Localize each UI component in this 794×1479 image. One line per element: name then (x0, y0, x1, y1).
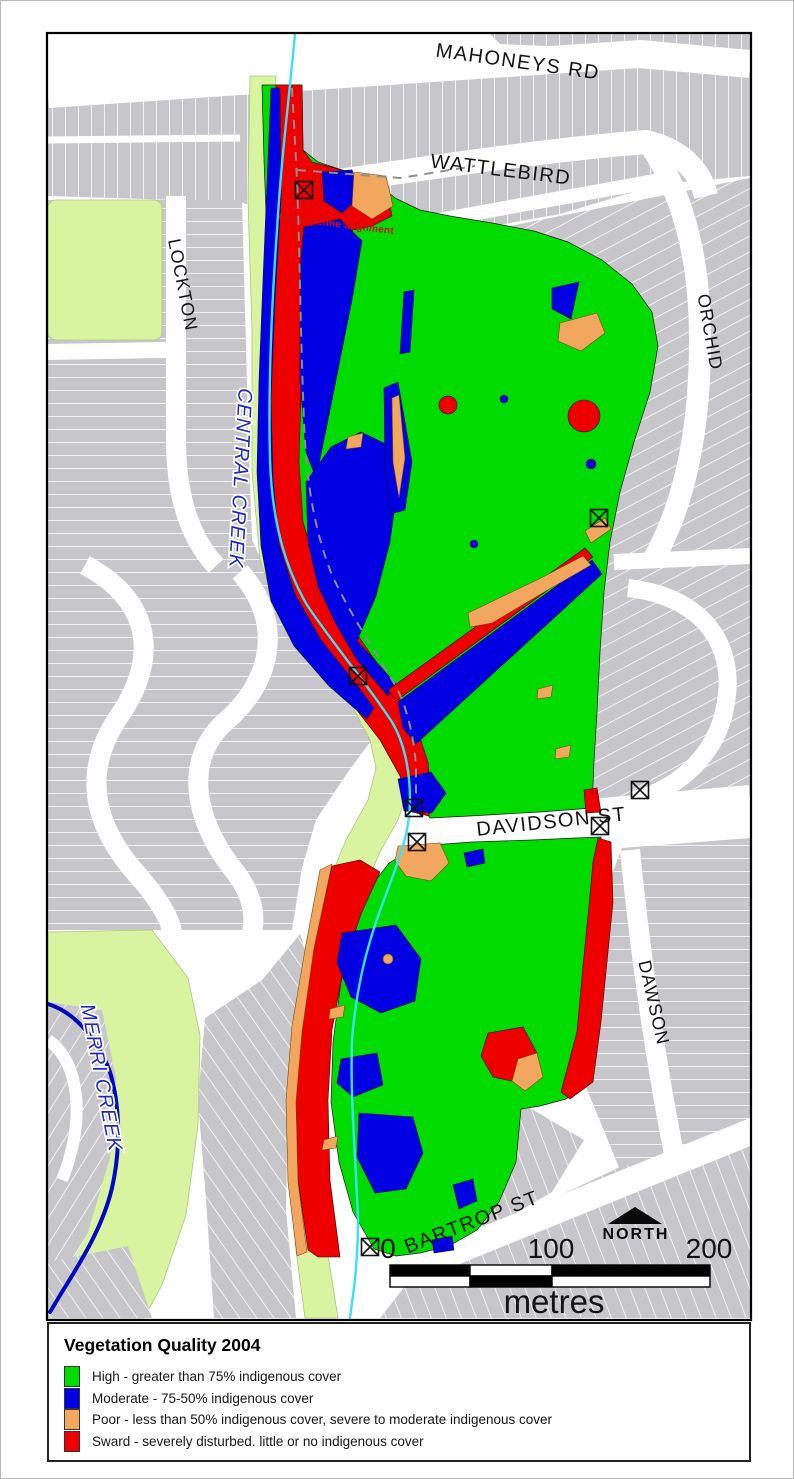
vegetation-poor-areas-shape (383, 954, 393, 964)
legend-item-label: Moderate - 75-50% indigenous cover (92, 1392, 313, 1406)
parkland-areas-shape (48, 200, 162, 340)
legend-item-label: High - greater than 75% indigenous cover (92, 1370, 341, 1384)
scale-tick-0: 0 (380, 1233, 396, 1264)
scale-tick-200: 200 (686, 1233, 733, 1264)
legend-item-sward: Sward - severely disturbed. little or no… (64, 1431, 733, 1453)
scale-tick-100: 100 (528, 1233, 575, 1264)
vegetation-sward-areas-shape (568, 400, 600, 432)
legend-item-label: Poor - less than 50% indigenous cover, s… (92, 1413, 552, 1427)
vegetation-quality-map: MAHONEYS RD WATTLEBIRD LOCKTON ORCHID CE… (0, 0, 794, 1479)
vegetation-moderate-areas-shape (586, 459, 596, 469)
scale-bar-segments-shape (470, 1265, 552, 1276)
legend-swatch-high (64, 1366, 80, 1387)
legend-item-label: Sward - severely disturbed. little or no… (92, 1435, 424, 1449)
vegetation-sward-areas-shape (439, 396, 457, 414)
page: { "map": { "colors": { "high": "#00DC00"… (0, 0, 794, 1479)
legend-item-poor: Poor - less than 50% indigenous cover, s… (64, 1409, 733, 1431)
legend-swatch-poor (64, 1409, 80, 1430)
vegetation-moderate-areas-shape (470, 540, 478, 548)
legend-box: Vegetation Quality 2004 High - greater t… (47, 1322, 751, 1462)
streets-shape (48, 350, 166, 352)
scale-bar-segments-shape (390, 1276, 470, 1287)
legend-swatch-sward (64, 1431, 80, 1452)
legend-swatch-moderate (64, 1388, 80, 1409)
streets-shape (48, 138, 240, 140)
scale-bar-segments-shape (390, 1265, 470, 1276)
north-arrow-label: NORTH (603, 1226, 670, 1243)
legend-item-high: High - greater than 75% indigenous cover (64, 1366, 733, 1388)
legend-title: Vegetation Quality 2004 (64, 1335, 733, 1356)
legend-rows: High - greater than 75% indigenous cover… (64, 1366, 733, 1452)
scale-bar-segments-shape (552, 1265, 710, 1276)
scale-unit-label: metres (504, 1283, 605, 1320)
legend-item-moderate: Moderate - 75-50% indigenous cover (64, 1388, 733, 1410)
streets-shape (614, 556, 750, 562)
vegetation-moderate-areas-shape (500, 395, 508, 403)
